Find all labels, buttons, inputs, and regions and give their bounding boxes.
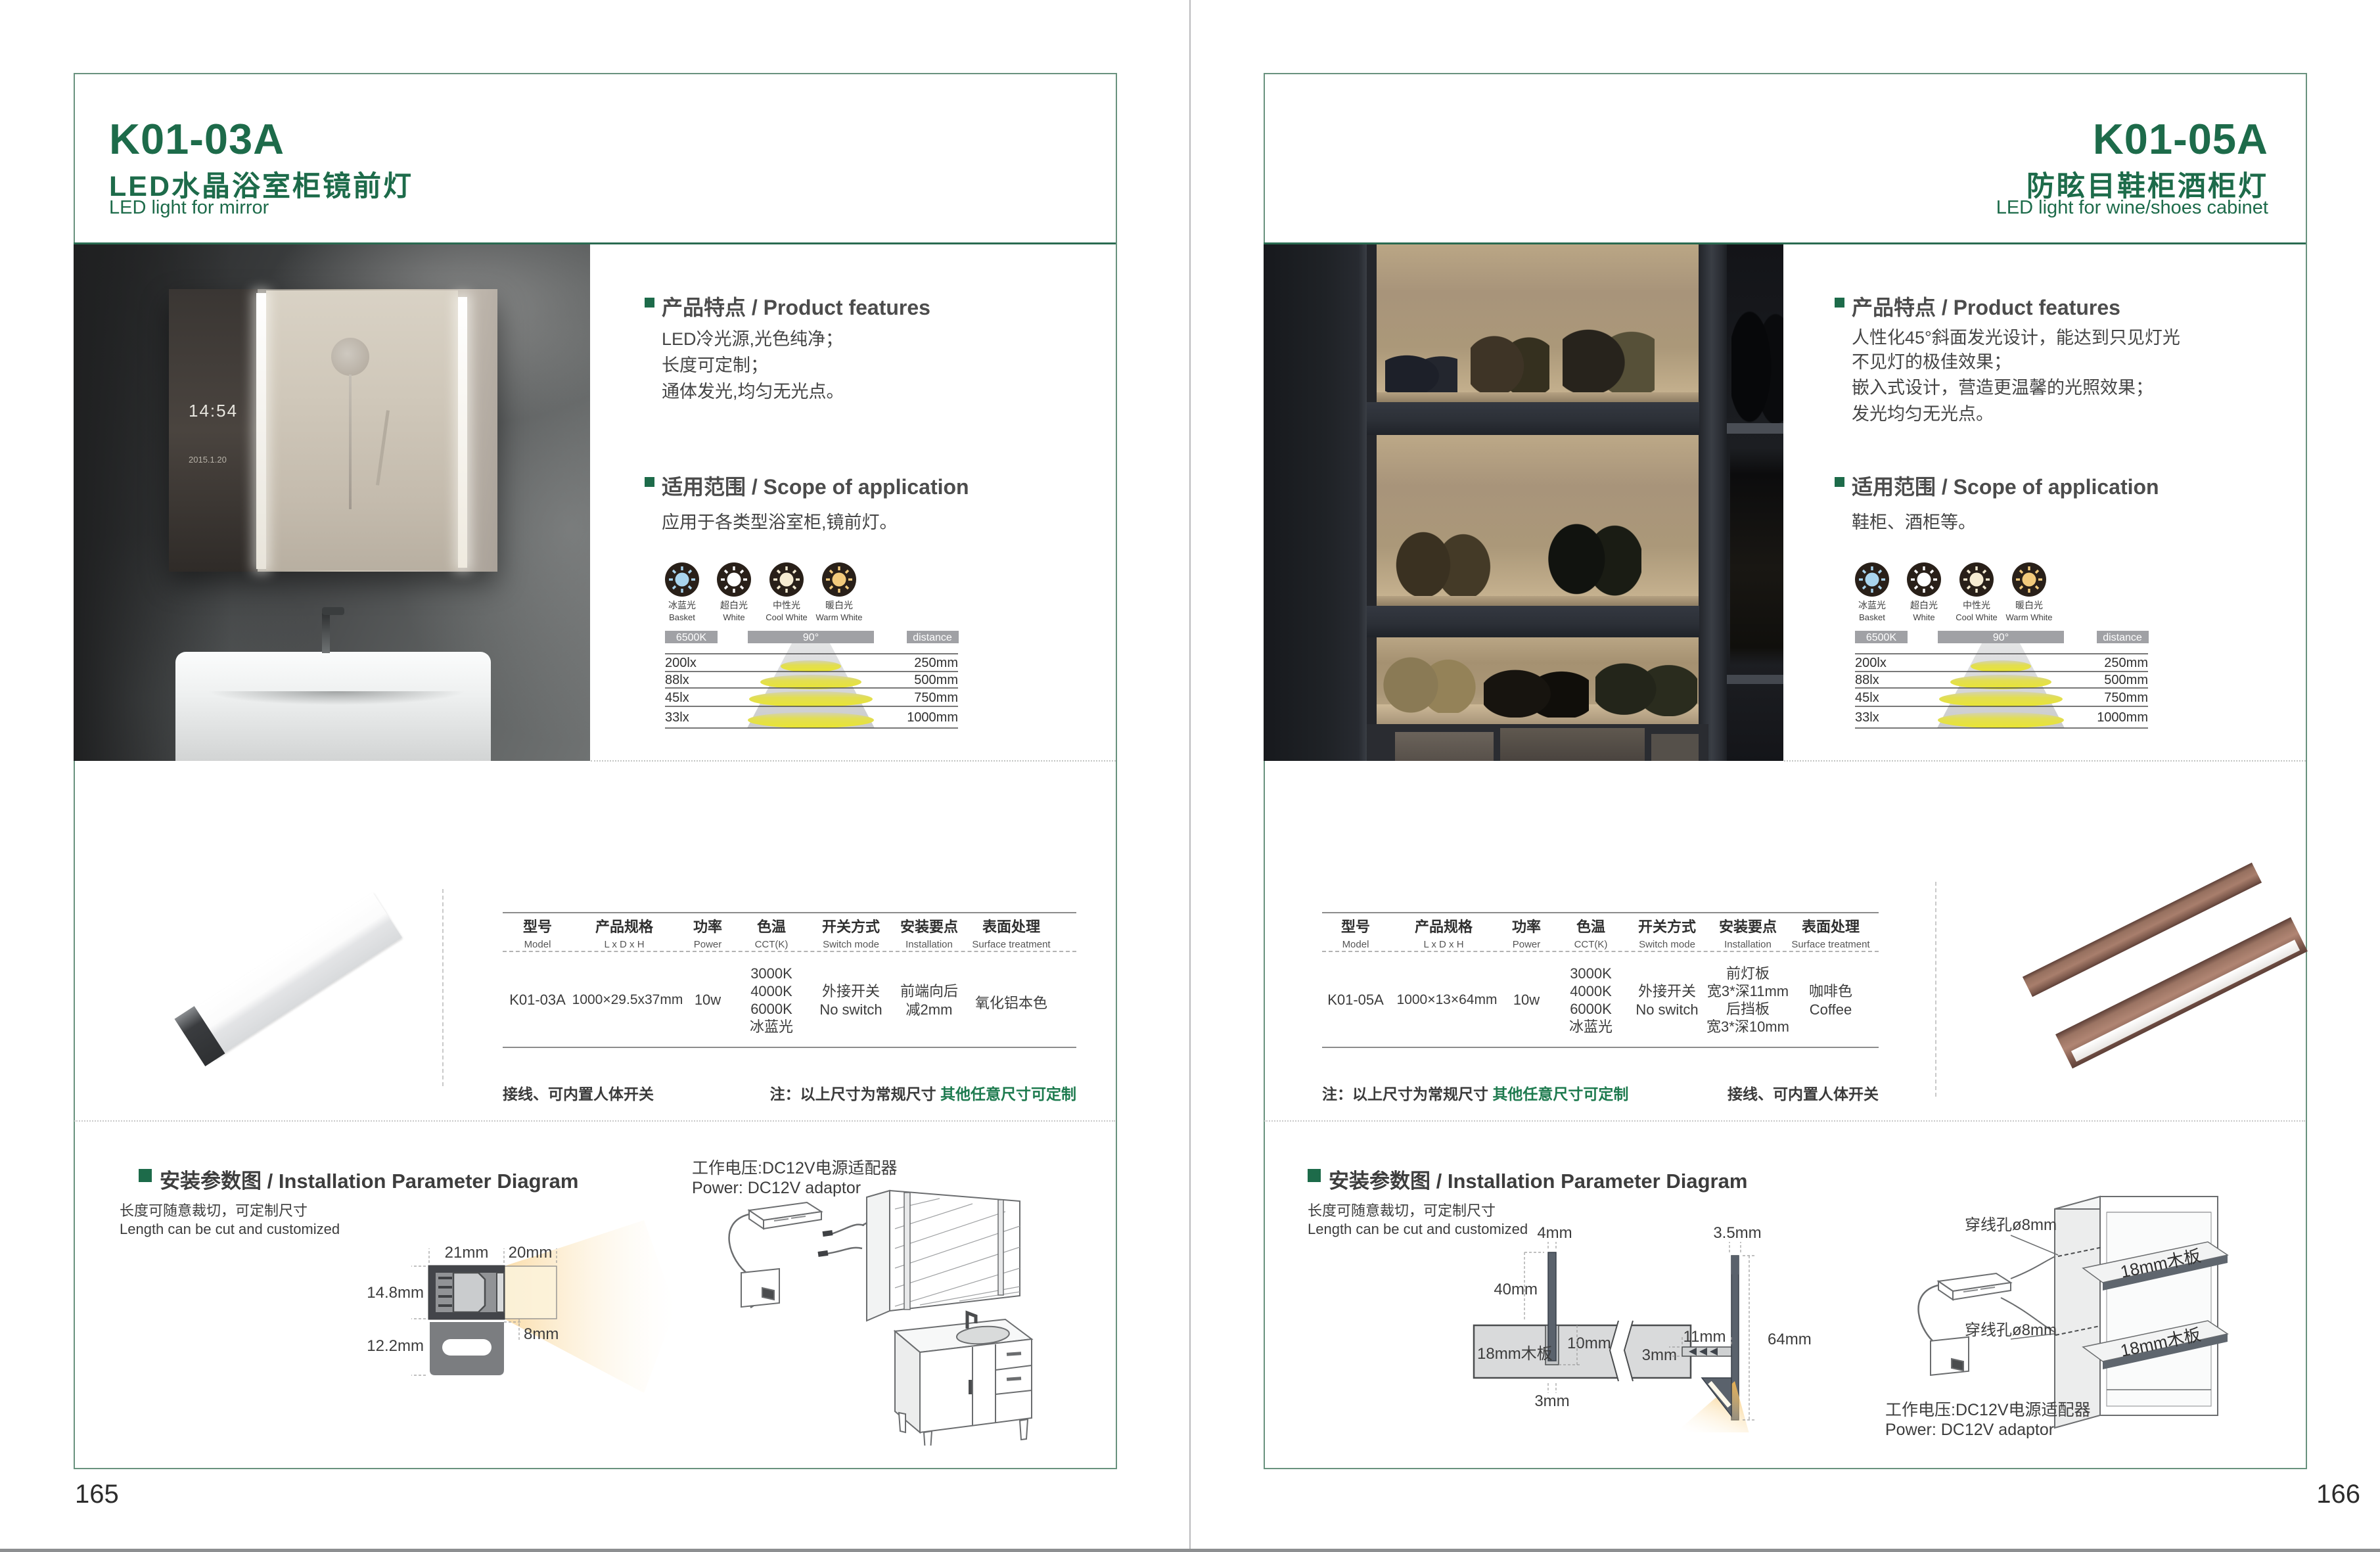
svg-text:暖白光: 暖白光 (825, 600, 853, 610)
svg-text:88lx: 88lx (665, 673, 689, 687)
svg-text:4mm: 4mm (1537, 1224, 1572, 1242)
svg-text:18mm木板: 18mm木板 (1477, 1345, 1553, 1363)
svg-text:White: White (1913, 612, 1934, 622)
svg-text:6500K: 6500K (1866, 632, 1897, 643)
svg-text:90°: 90° (1993, 632, 2009, 643)
svg-text:500mm: 500mm (914, 673, 958, 687)
svg-text:40mm: 40mm (1494, 1281, 1538, 1298)
svg-text:distance: distance (913, 632, 952, 643)
svg-text:1000mm: 1000mm (907, 710, 958, 725)
svg-text:33lx: 33lx (665, 710, 689, 725)
svg-text:中性光: 中性光 (1963, 600, 1990, 610)
svg-text:90°: 90° (803, 632, 819, 643)
svg-text:250mm: 250mm (2104, 656, 2148, 670)
svg-text:Basket: Basket (1859, 612, 1885, 622)
svg-text:33lx: 33lx (1855, 710, 1879, 725)
svg-text:穿线孔ø8mm: 穿线孔ø8mm (1965, 1216, 2057, 1234)
svg-text:10mm: 10mm (1567, 1335, 1611, 1352)
svg-text:88lx: 88lx (1855, 673, 1879, 687)
svg-text:64mm: 64mm (1768, 1331, 1812, 1348)
svg-text:750mm: 750mm (2104, 691, 2148, 705)
svg-text:Cool White: Cool White (1956, 612, 1998, 622)
svg-text:45lx: 45lx (1855, 691, 1879, 705)
svg-text:8mm: 8mm (524, 1325, 559, 1343)
svg-text:冰蓝光: 冰蓝光 (668, 600, 696, 610)
svg-text:超白光: 超白光 (720, 600, 748, 610)
svg-text:distance: distance (2103, 632, 2142, 643)
svg-text:穿线孔ø8mm: 穿线孔ø8mm (1965, 1321, 2057, 1339)
svg-text:20mm: 20mm (509, 1244, 553, 1262)
svg-text:冰蓝光: 冰蓝光 (1858, 600, 1886, 610)
svg-text:14.8mm: 14.8mm (368, 1284, 424, 1302)
svg-text:暖白光: 暖白光 (2015, 600, 2043, 610)
svg-text:12.2mm: 12.2mm (368, 1337, 424, 1355)
svg-text:3.5mm: 3.5mm (1713, 1224, 1761, 1242)
svg-text:中性光: 中性光 (773, 600, 800, 610)
svg-text:45lx: 45lx (665, 691, 689, 705)
svg-text:250mm: 250mm (914, 656, 958, 670)
svg-text:3mm: 3mm (1642, 1346, 1677, 1364)
svg-text:Basket: Basket (669, 612, 695, 622)
svg-text:21mm: 21mm (445, 1244, 489, 1262)
svg-text:3mm: 3mm (1534, 1392, 1569, 1410)
svg-text:750mm: 750mm (914, 691, 958, 705)
svg-text:White: White (723, 612, 744, 622)
svg-text:1000mm: 1000mm (2097, 710, 2148, 725)
svg-text:200lx: 200lx (665, 656, 697, 670)
svg-text:500mm: 500mm (2104, 673, 2148, 687)
svg-text:11mm: 11mm (1683, 1328, 1726, 1346)
svg-text:超白光: 超白光 (1910, 600, 1938, 610)
svg-text:Cool White: Cool White (766, 612, 808, 622)
svg-text:Warm White: Warm White (2005, 612, 2052, 622)
svg-text:Warm White: Warm White (815, 612, 862, 622)
svg-text:200lx: 200lx (1855, 656, 1887, 670)
svg-text:6500K: 6500K (676, 632, 707, 643)
